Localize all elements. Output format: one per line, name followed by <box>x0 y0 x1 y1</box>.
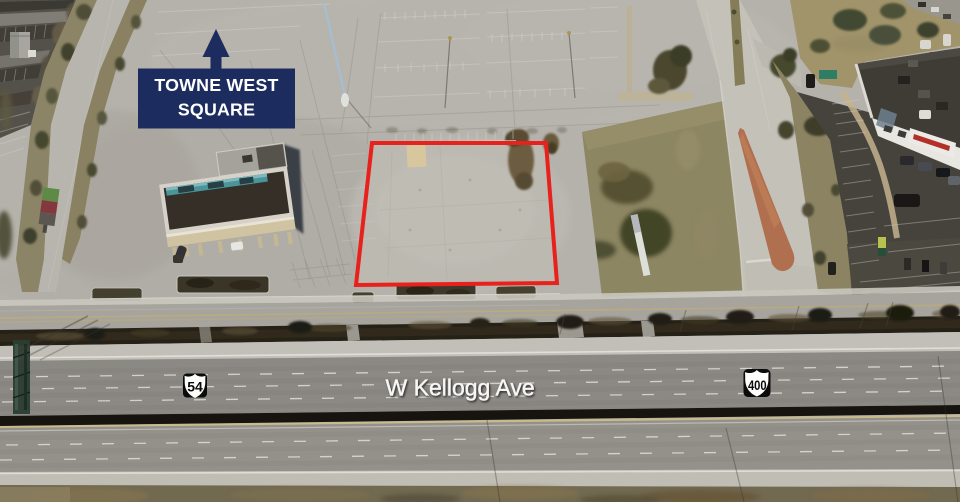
svg-text:SQUARE: SQUARE <box>178 99 255 119</box>
svg-text:W Kellogg Ave: W Kellogg Ave <box>386 375 535 401</box>
svg-text:400: 400 <box>748 378 767 393</box>
svg-text:54: 54 <box>187 379 203 395</box>
svg-text:TOWNE WEST: TOWNE WEST <box>154 75 278 95</box>
